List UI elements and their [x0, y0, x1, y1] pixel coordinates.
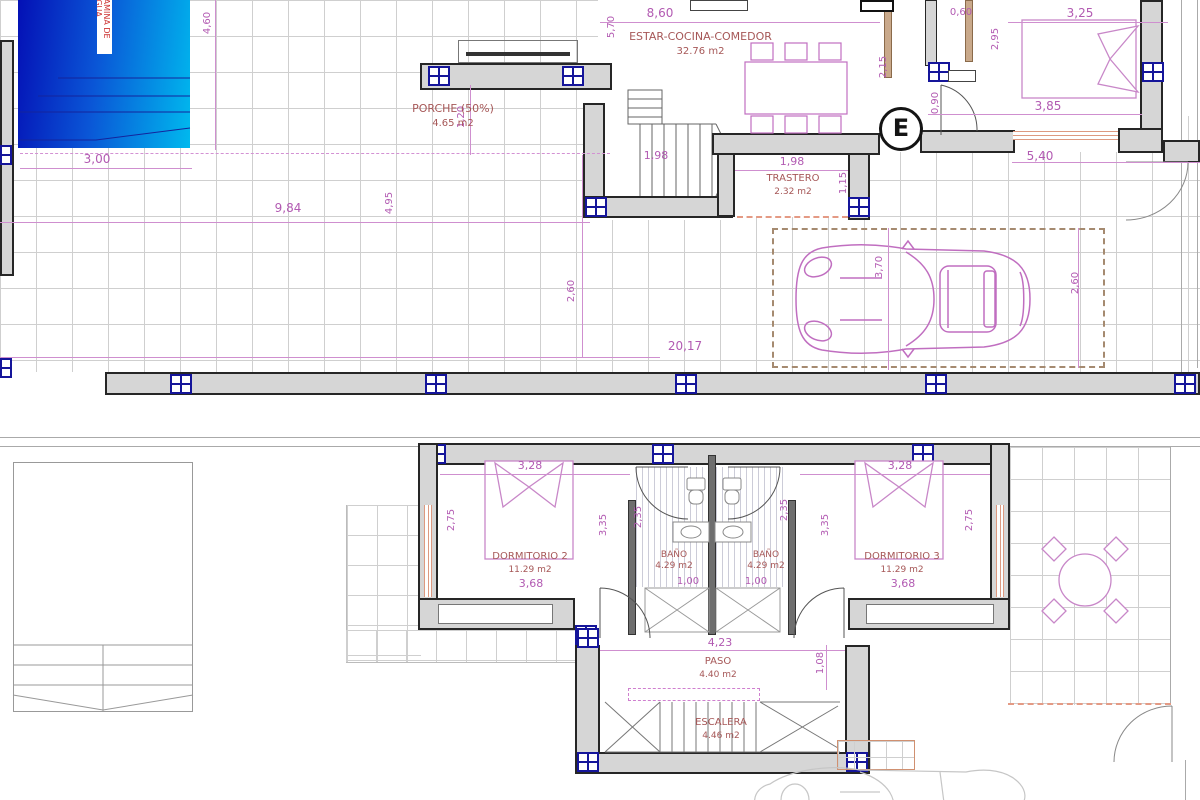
dimension-label: 2,75 — [447, 502, 457, 538]
column-marker — [562, 66, 584, 86]
room-label-dorm2: DORMITORIO 2 11.29 m2 — [486, 551, 574, 576]
dimension-label: 3,28 — [506, 460, 554, 471]
dimension-line — [1008, 22, 1168, 23]
room-area: 11.29 m2 — [880, 565, 923, 575]
dimension-label: 3,35 — [821, 507, 831, 543]
plot-boundary-line — [1197, 0, 1198, 368]
dimension-label: 3,25 — [1050, 7, 1110, 19]
storage-wall-left — [717, 153, 735, 217]
room-label-porche: PORCHE (50%) 4.65 m2 — [388, 102, 518, 130]
house-wall — [712, 133, 880, 155]
dimension-label: 2,75 — [965, 502, 975, 538]
porch-beam — [466, 52, 570, 56]
double-bed — [1022, 18, 1142, 102]
paso-wall-left — [575, 645, 600, 755]
bathroom-sink — [714, 521, 752, 543]
column-marker — [577, 752, 599, 772]
room-area: 4.29 m2 — [655, 561, 692, 571]
room-name: TRASTERO — [745, 173, 841, 186]
dimension-label: 3,68 — [508, 578, 554, 589]
dimension-line — [215, 0, 216, 150]
dimension-label: 1,00 — [668, 577, 708, 587]
room-area: 4.46 m2 — [702, 731, 739, 741]
dimension-line — [582, 155, 583, 358]
dorm2-window — [424, 505, 432, 597]
dimension-label: 2,35 — [634, 500, 644, 534]
dimension-label: 1,98 — [764, 156, 820, 167]
dimension-label: 3,68 — [880, 578, 926, 589]
dimension-line — [600, 22, 880, 23]
terrace-table-set — [1040, 535, 1130, 625]
dimension-line — [0, 222, 590, 223]
column-marker — [1142, 62, 1164, 82]
dimension-label: 3,35 — [599, 507, 609, 543]
column-marker — [925, 374, 947, 394]
room-name: BAÑO — [648, 550, 700, 561]
column-marker — [0, 145, 12, 165]
door-arc — [1114, 706, 1172, 762]
dimension-label: 5,40 — [1010, 150, 1070, 162]
pool-label: LAMINA DE AGUA — [97, 0, 112, 54]
room-label-dorm3: DORMITORIO 3 11.29 m2 — [858, 551, 946, 576]
door-arc — [794, 588, 844, 638]
dimension-label: 4,23 — [692, 637, 748, 648]
bottom-terrace-wall — [105, 372, 1200, 395]
dimension-line — [826, 645, 827, 690]
dimension-line — [0, 357, 660, 358]
bathroom-sink — [672, 521, 710, 543]
dimension-label: 0,90 — [931, 85, 941, 121]
column-marker — [577, 628, 599, 648]
room-area: 4.65 m2 — [432, 118, 474, 129]
right-edge-wall — [1163, 140, 1200, 163]
dimension-label: 2,15 — [879, 47, 889, 87]
dimension-label: 1,98 — [628, 150, 684, 161]
kitchen-wall — [925, 0, 937, 66]
room-name: ESCALERA — [686, 717, 756, 730]
room-name: PORCHE (50%) — [388, 102, 518, 116]
column-marker — [675, 374, 697, 394]
room-area: 4.40 m2 — [699, 670, 736, 680]
paso-wall-right — [845, 645, 870, 755]
pool-contour-lines — [18, 60, 190, 148]
dimension-label: 3,70 — [875, 247, 885, 287]
dimension-line — [888, 228, 889, 370]
bedroom-window — [1013, 131, 1120, 140]
car-top-view — [788, 240, 1038, 358]
dimension-line — [735, 170, 848, 171]
door-arc — [600, 588, 650, 638]
dimension-line — [20, 168, 192, 169]
kitchen-sink — [690, 0, 748, 11]
dimension-label: 3,85 — [1018, 100, 1078, 112]
storage-threshold — [737, 216, 848, 218]
pool-outline-lines — [13, 462, 193, 712]
dimension-line — [440, 474, 630, 475]
dimension-label: 20,17 — [650, 340, 720, 352]
column-marker — [1174, 374, 1196, 394]
dimension-label: 1,08 — [816, 646, 826, 680]
kitchen-counter — [948, 70, 976, 82]
room-area: 11.29 m2 — [508, 565, 551, 575]
column-marker — [928, 62, 950, 82]
plot-boundary-line — [0, 437, 1200, 438]
terrace-tile-grid — [346, 630, 578, 663]
dimension-label: 3,28 — [876, 460, 924, 471]
bedroom-wall-bottom-right — [1118, 128, 1163, 153]
column-marker — [428, 66, 450, 86]
dimension-label: 9,84 — [258, 202, 318, 214]
terrace-edge-line — [1008, 703, 1171, 705]
dimension-label: 4,95 — [385, 183, 395, 223]
room-area: 4.29 m2 — [747, 561, 784, 571]
dorm2-wardrobe-inner — [438, 604, 553, 624]
dorm3-window — [996, 505, 1004, 597]
dimension-label: 2,60 — [1071, 263, 1081, 303]
room-name: BAÑO — [740, 550, 792, 561]
door-arc — [728, 467, 780, 519]
room-name: DORMITORIO 3 — [858, 551, 946, 564]
dimension-label: 2,95 — [991, 19, 1001, 59]
floor-plan-drawing: LAMINA DE AGUA — [0, 0, 1200, 800]
room-label-escalera: ESCALERA 4.46 m2 — [686, 717, 756, 742]
terrace-edge — [1170, 447, 1171, 705]
door-arc — [905, 85, 977, 135]
column-marker — [0, 358, 12, 378]
dimension-label: 1,00 — [736, 577, 776, 587]
dimension-label: 2,35 — [780, 493, 790, 527]
dimension-label: 0,60 — [938, 8, 984, 18]
room-label-paso: PASO 4.40 m2 — [688, 656, 748, 681]
room-name: DORMITORIO 2 — [486, 551, 574, 564]
room-area: 2.32 m2 — [774, 187, 811, 197]
dimension-label: 3,00 — [62, 153, 132, 165]
room-label-bano-right: BAÑO 4.29 m2 — [740, 550, 792, 573]
room-label-bano-left: BAÑO 4.29 m2 — [648, 550, 700, 573]
dorm3-wardrobe-inner — [866, 604, 994, 624]
column-marker — [652, 444, 674, 464]
dimension-label: 4,60 — [203, 3, 213, 43]
dimension-label: 2,60 — [567, 271, 577, 311]
room-name: PASO — [688, 656, 748, 669]
kitchen-hob — [860, 0, 894, 12]
room-label-estar: ESTAR-COCINA-COMEDOR 32.76 m2 — [608, 30, 793, 58]
dimension-label: 8,60 — [630, 7, 690, 19]
pool-label-text: LAMINA DE AGUA — [97, 0, 111, 39]
room-name: ESTAR-COCINA-COMEDOR — [608, 30, 793, 44]
room-area: 32.76 m2 — [677, 46, 725, 57]
shower-hatch — [716, 588, 780, 632]
dimension-line — [800, 474, 990, 475]
column-marker — [170, 374, 192, 394]
room-label-trastero: TRASTERO 2.32 m2 — [745, 173, 841, 198]
shower-hatch — [645, 588, 709, 632]
dimension-line — [600, 650, 845, 651]
column-marker — [425, 374, 447, 394]
door-arc — [1126, 162, 1188, 220]
dimension-line — [928, 114, 1142, 115]
column-marker — [848, 197, 870, 217]
terrace-edge — [1185, 760, 1186, 800]
faint-car-sketch — [740, 762, 1040, 800]
